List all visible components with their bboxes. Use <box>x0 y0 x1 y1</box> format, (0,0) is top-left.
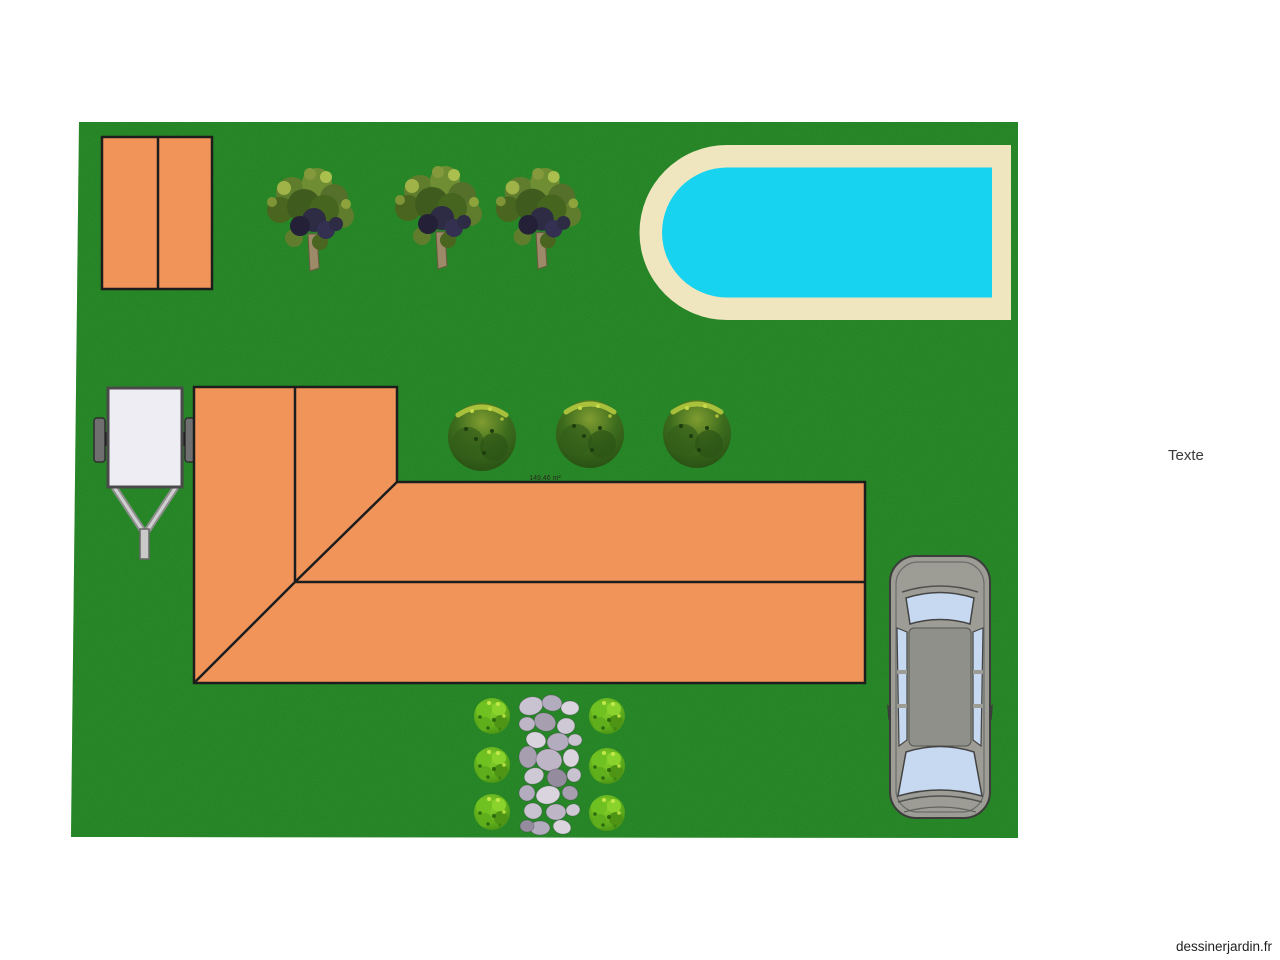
hedge-bush[interactable] <box>448 403 516 471</box>
small-bush[interactable] <box>589 795 625 831</box>
text-object[interactable]: Texte <box>1168 447 1204 464</box>
small-bush[interactable] <box>474 794 510 830</box>
small-bush[interactable] <box>474 747 510 783</box>
hedge-bush[interactable] <box>556 400 624 468</box>
small-bush[interactable] <box>589 748 625 784</box>
garden-plan-canvas: 149.46 m² <box>0 0 1280 960</box>
shed[interactable] <box>102 137 212 289</box>
house-area-label: 149.46 m² <box>529 475 561 482</box>
small-bush[interactable] <box>589 698 625 734</box>
gravel-path[interactable] <box>517 693 582 836</box>
swimming-pool[interactable] <box>640 145 1011 320</box>
car[interactable] <box>888 556 992 818</box>
hedge-bush[interactable] <box>663 400 731 468</box>
small-bush[interactable] <box>474 698 510 734</box>
watermark: dessinerjardin.fr <box>1176 939 1273 954</box>
